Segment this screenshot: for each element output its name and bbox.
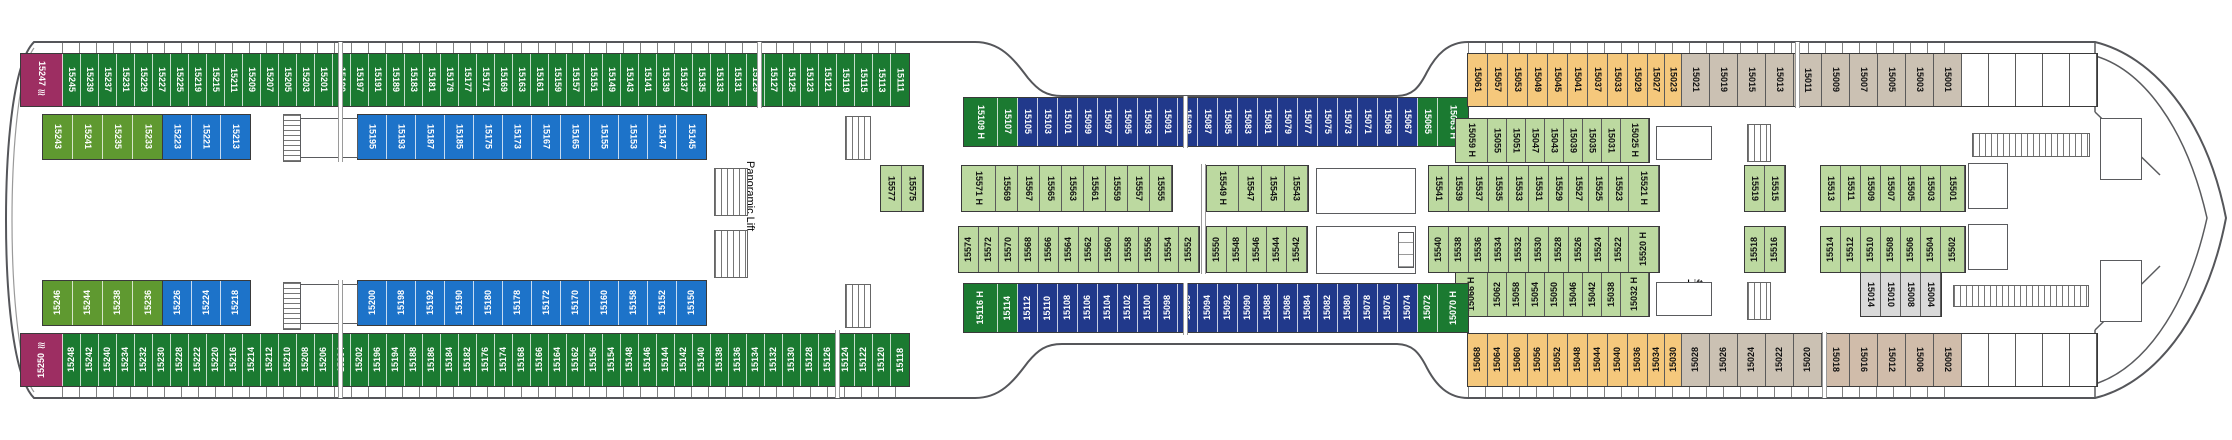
cabin-15027[interactable]: 15027 xyxy=(1648,54,1665,106)
cabin-15152[interactable]: 15152 xyxy=(648,281,677,325)
cabin-15085[interactable]: 15085 xyxy=(1218,98,1238,146)
cabin-15088[interactable]: 15088 xyxy=(1258,284,1278,332)
cabin-15241[interactable]: 15241 xyxy=(73,115,103,159)
cabin-15200[interactable]: 15200 xyxy=(358,281,387,325)
cabin-15129[interactable]: 15129 xyxy=(747,54,765,106)
cabin-15557[interactable]: 15557 xyxy=(1128,166,1150,211)
cabin-15210[interactable]: 15210 xyxy=(279,334,297,386)
cabin-15515[interactable]: 15515 xyxy=(1765,166,1785,211)
cabin-15125[interactable]: 15125 xyxy=(783,54,801,106)
cabin-15229[interactable]: 15229 xyxy=(135,54,153,106)
cabin-15520-H[interactable]: 15520 H xyxy=(1629,227,1659,272)
cabin-15110[interactable]: 15110 xyxy=(1038,284,1058,332)
cabin-15542[interactable]: 15542 xyxy=(1287,227,1307,272)
cabin-15015[interactable]: 15015 xyxy=(1738,54,1766,106)
cabin-15044[interactable]: 15044 xyxy=(1588,334,1608,386)
cabin-15206[interactable]: 15206 xyxy=(315,334,333,386)
cabin-15037[interactable]: 15037 xyxy=(1588,54,1608,106)
cabin-15532[interactable]: 15532 xyxy=(1509,227,1529,272)
cabin-15134[interactable]: 15134 xyxy=(747,334,765,386)
cabin-15172[interactable]: 15172 xyxy=(532,281,561,325)
cabin-15203[interactable]: 15203 xyxy=(297,54,315,106)
cabin-15242[interactable]: 15242 xyxy=(81,334,99,386)
cabin-15055[interactable]: 15055 xyxy=(1488,119,1507,162)
cabin-15225[interactable]: 15225 xyxy=(171,54,189,106)
cabin-15052[interactable]: 15052 xyxy=(1548,334,1568,386)
cabin-15080[interactable]: 15080 xyxy=(1338,284,1358,332)
cabin-15509[interactable]: 15509 xyxy=(1861,166,1881,211)
cabin-15160[interactable]: 15160 xyxy=(590,281,619,325)
cabin-15075[interactable]: 15075 xyxy=(1318,98,1338,146)
cabin-15233[interactable]: 15233 xyxy=(133,115,163,159)
cabin-15567[interactable]: 15567 xyxy=(1018,166,1040,211)
cabin-15194[interactable]: 15194 xyxy=(387,334,405,386)
cabin-15122[interactable]: 15122 xyxy=(855,334,873,386)
cabin-15136[interactable]: 15136 xyxy=(729,334,747,386)
cabin-15234[interactable]: 15234 xyxy=(117,334,135,386)
cabin-15148[interactable]: 15148 xyxy=(621,334,639,386)
cabin-15526[interactable]: 15526 xyxy=(1569,227,1589,272)
cabin-15159[interactable]: 15159 xyxy=(549,54,567,106)
cabin-15223[interactable]: 15223 xyxy=(163,115,192,159)
cabin-15565[interactable]: 15565 xyxy=(1040,166,1062,211)
cabin-15237[interactable]: 15237 xyxy=(99,54,117,106)
cabin-15238[interactable]: 15238 xyxy=(103,281,133,325)
cabin-15226[interactable]: 15226 xyxy=(163,281,192,325)
cabin-15102[interactable]: 15102 xyxy=(1118,284,1138,332)
cabin-15207[interactable]: 15207 xyxy=(261,54,279,106)
cabin-15140[interactable]: 15140 xyxy=(693,334,711,386)
cabin-15166[interactable]: 15166 xyxy=(531,334,549,386)
cabin-15031[interactable]: 15031 xyxy=(1602,119,1621,162)
cabin-15141[interactable]: 15141 xyxy=(639,54,657,106)
cabin-15060[interactable]: 15060 xyxy=(1508,334,1528,386)
cabin-15228[interactable]: 15228 xyxy=(171,334,189,386)
cabin-15536[interactable]: 15536 xyxy=(1469,227,1489,272)
cabin-15541[interactable]: 15541 xyxy=(1429,166,1449,211)
cabin-15029[interactable]: 15029 xyxy=(1628,54,1648,106)
cabin-15010[interactable]: 15010 xyxy=(1881,273,1901,316)
cabin-15065[interactable]: 15065 xyxy=(1418,98,1438,146)
cabin-15174[interactable]: 15174 xyxy=(495,334,513,386)
cabin-15161[interactable]: 15161 xyxy=(531,54,549,106)
cabin-15550[interactable]: 15550 xyxy=(1207,227,1227,272)
cabin-15078[interactable]: 15078 xyxy=(1358,284,1378,332)
cabin-15097[interactable]: 15097 xyxy=(1098,98,1118,146)
cabin-15087[interactable]: 15087 xyxy=(1198,98,1218,146)
cabin-15082[interactable]: 15082 xyxy=(1318,284,1338,332)
cabin-15211[interactable]: 15211 xyxy=(225,54,243,106)
cabin-15171[interactable]: 15171 xyxy=(477,54,495,106)
cabin-15209[interactable]: 15209 xyxy=(243,54,261,106)
cabin-15537[interactable]: 15537 xyxy=(1469,166,1489,211)
cabin-15154[interactable]: 15154 xyxy=(603,334,621,386)
cabin-15525[interactable]: 15525 xyxy=(1589,166,1609,211)
cabin-15546[interactable]: 15546 xyxy=(1247,227,1267,272)
cabin-15045[interactable]: 15045 xyxy=(1548,54,1568,106)
cabin-15224[interactable]: 15224 xyxy=(192,281,221,325)
cabin-15560[interactable]: 15560 xyxy=(1099,227,1119,272)
cabin-15215[interactable]: 15215 xyxy=(207,54,225,106)
cabin-15163[interactable]: 15163 xyxy=(513,54,531,106)
cabin-15073[interactable]: 15073 xyxy=(1338,98,1358,146)
cabin-15012[interactable]: 15012 xyxy=(1878,334,1906,386)
cabin-15028[interactable]: 15028 xyxy=(1682,334,1710,386)
cabin-15190[interactable]: 15190 xyxy=(445,281,474,325)
cabin-15006[interactable]: 15006 xyxy=(1906,334,1934,386)
cabin-15009[interactable]: 15009 xyxy=(1822,54,1850,106)
cabin-15563[interactable]: 15563 xyxy=(1062,166,1084,211)
cabin-15093[interactable]: 15093 xyxy=(1138,98,1158,146)
cabin-15020[interactable]: 15020 xyxy=(1794,334,1822,386)
cabin-15039[interactable]: 15039 xyxy=(1564,119,1583,162)
cabin-15182[interactable]: 15182 xyxy=(459,334,477,386)
cabin-15186[interactable]: 15186 xyxy=(423,334,441,386)
cabin-15248[interactable]: 15248 xyxy=(63,334,81,386)
cabin-15176[interactable]: 15176 xyxy=(477,334,495,386)
cabin-15250[interactable]: 15250≋ xyxy=(21,334,63,386)
cabin-15246[interactable]: 15246 xyxy=(43,281,73,325)
cabin-15201[interactable]: 15201 xyxy=(315,54,333,106)
cabin-15547[interactable]: 15547 xyxy=(1239,166,1262,211)
cabin-15566[interactable]: 15566 xyxy=(1039,227,1059,272)
cabin-15181[interactable]: 15181 xyxy=(423,54,441,106)
cabin-15572[interactable]: 15572 xyxy=(979,227,999,272)
cabin-15189[interactable]: 15189 xyxy=(387,54,405,106)
cabin-15555[interactable]: 15555 xyxy=(1150,166,1172,211)
cabin-15040[interactable]: 15040 xyxy=(1608,334,1628,386)
cabin-15051[interactable]: 15051 xyxy=(1507,119,1526,162)
cabin-15230[interactable]: 15230 xyxy=(153,334,171,386)
cabin-15528[interactable]: 15528 xyxy=(1549,227,1569,272)
cabin-15564[interactable]: 15564 xyxy=(1059,227,1079,272)
cabin-15516[interactable]: 15516 xyxy=(1765,227,1785,272)
cabin-15061[interactable]: 15061 xyxy=(1468,54,1488,106)
cabin-15178[interactable]: 15178 xyxy=(503,281,532,325)
cabin-15068[interactable]: 15068 xyxy=(1468,334,1488,386)
cabin-15503[interactable]: 15503 xyxy=(1921,166,1941,211)
cabin-15059-H[interactable]: 15059 H xyxy=(1456,119,1488,162)
cabin-15146[interactable]: 15146 xyxy=(639,334,657,386)
cabin-15227[interactable]: 15227 xyxy=(153,54,171,106)
cabin-15151[interactable]: 15151 xyxy=(585,54,603,106)
cabin-15195[interactable]: 15195 xyxy=(358,115,387,159)
cabin-15106[interactable]: 15106 xyxy=(1078,284,1098,332)
cabin-15076[interactable]: 15076 xyxy=(1378,284,1398,332)
cabin-15197[interactable]: 15197 xyxy=(351,54,369,106)
cabin-15513[interactable]: 15513 xyxy=(1821,166,1841,211)
cabin-15107[interactable]: 15107 xyxy=(998,98,1018,146)
cabin-15016[interactable]: 15016 xyxy=(1850,334,1878,386)
cabin-15025-H[interactable]: 15025 H xyxy=(1621,119,1649,162)
cabin-15521-H[interactable]: 15521 H xyxy=(1629,166,1659,211)
cabin-15548[interactable]: 15548 xyxy=(1227,227,1247,272)
cabin-15243[interactable]: 15243 xyxy=(43,115,73,159)
cabin-15533[interactable]: 15533 xyxy=(1509,166,1529,211)
cabin-15095[interactable]: 15095 xyxy=(1118,98,1138,146)
cabin-15213[interactable]: 15213 xyxy=(221,115,250,159)
cabin-15021[interactable]: 15021 xyxy=(1682,54,1710,106)
cabin-15177[interactable]: 15177 xyxy=(459,54,477,106)
cabin-15156[interactable]: 15156 xyxy=(585,334,603,386)
cabin-15036[interactable]: 15036 xyxy=(1628,334,1648,386)
cabin-15046[interactable]: 15046 xyxy=(1564,273,1583,316)
cabin-15540[interactable]: 15540 xyxy=(1429,227,1449,272)
cabin-15067[interactable]: 15067 xyxy=(1398,98,1418,146)
cabin-15527[interactable]: 15527 xyxy=(1569,166,1589,211)
cabin-15105[interactable]: 15105 xyxy=(1018,98,1038,146)
cabin-15034[interactable]: 15034 xyxy=(1648,334,1665,386)
cabin-15081[interactable]: 15081 xyxy=(1258,98,1278,146)
cabin-15569[interactable]: 15569 xyxy=(996,166,1018,211)
cabin-15205[interactable]: 15205 xyxy=(279,54,297,106)
cabin-15072[interactable]: 15072 xyxy=(1418,284,1438,332)
cabin-15157[interactable]: 15157 xyxy=(567,54,585,106)
cabin-15003[interactable]: 15003 xyxy=(1906,54,1934,106)
cabin-15002[interactable]: 15002 xyxy=(1934,334,1962,386)
cabin-15196[interactable]: 15196 xyxy=(369,334,387,386)
cabin-15508[interactable]: 15508 xyxy=(1881,227,1901,272)
cabin-15556[interactable]: 15556 xyxy=(1139,227,1159,272)
cabin-15058[interactable]: 15058 xyxy=(1507,273,1526,316)
cabin-15143[interactable]: 15143 xyxy=(621,54,639,106)
cabin-15092[interactable]: 15092 xyxy=(1218,284,1238,332)
cabin-15191[interactable]: 15191 xyxy=(369,54,387,106)
cabin-15554[interactable]: 15554 xyxy=(1159,227,1179,272)
cabin-15030[interactable]: 15030 xyxy=(1665,334,1682,386)
cabin-15539[interactable]: 15539 xyxy=(1449,166,1469,211)
cabin-15147[interactable]: 15147 xyxy=(648,115,677,159)
cabin-15118[interactable]: 15118 xyxy=(891,334,909,386)
cabin-15245[interactable]: 15245 xyxy=(63,54,81,106)
cabin-15111[interactable]: 15111 xyxy=(891,54,909,106)
cabin-15150[interactable]: 15150 xyxy=(677,281,706,325)
cabin-15022[interactable]: 15022 xyxy=(1766,334,1794,386)
cabin-15504[interactable]: 15504 xyxy=(1921,227,1941,272)
cabin-15137[interactable]: 15137 xyxy=(675,54,693,106)
cabin-15198[interactable]: 15198 xyxy=(387,281,416,325)
cabin-15180[interactable]: 15180 xyxy=(474,281,503,325)
cabin-15079[interactable]: 15079 xyxy=(1278,98,1298,146)
cabin-15108[interactable]: 15108 xyxy=(1058,284,1078,332)
cabin-15024[interactable]: 15024 xyxy=(1738,334,1766,386)
cabin-15103[interactable]: 15103 xyxy=(1038,98,1058,146)
cabin-15562[interactable]: 15562 xyxy=(1079,227,1099,272)
cabin-15104[interactable]: 15104 xyxy=(1098,284,1118,332)
cabin-15222[interactable]: 15222 xyxy=(189,334,207,386)
cabin-15135[interactable]: 15135 xyxy=(693,54,711,106)
cabin-15033[interactable]: 15033 xyxy=(1608,54,1628,106)
cabin-15502[interactable]: 15502 xyxy=(1941,227,1965,272)
cabin-15185[interactable]: 15185 xyxy=(445,115,474,159)
cabin-15505[interactable]: 15505 xyxy=(1901,166,1921,211)
cabin-15529[interactable]: 15529 xyxy=(1549,166,1569,211)
cabin-15041[interactable]: 15041 xyxy=(1568,54,1588,106)
cabin-15501[interactable]: 15501 xyxy=(1941,166,1965,211)
cabin-15069[interactable]: 15069 xyxy=(1378,98,1398,146)
cabin-15220[interactable]: 15220 xyxy=(207,334,225,386)
cabin-15023[interactable]: 15023 xyxy=(1665,54,1682,106)
cabin-15193[interactable]: 15193 xyxy=(387,115,416,159)
cabin-15535[interactable]: 15535 xyxy=(1489,166,1509,211)
cabin-15531[interactable]: 15531 xyxy=(1529,166,1549,211)
cabin-15153[interactable]: 15153 xyxy=(619,115,648,159)
cabin-15575[interactable]: 15575 xyxy=(902,166,923,211)
cabin-15552[interactable]: 15552 xyxy=(1179,227,1199,272)
cabin-15514[interactable]: 15514 xyxy=(1821,227,1841,272)
cabin-15038[interactable]: 15038 xyxy=(1602,273,1621,316)
cabin-15162[interactable]: 15162 xyxy=(567,334,585,386)
cabin-15510[interactable]: 15510 xyxy=(1861,227,1881,272)
cabin-15512[interactable]: 15512 xyxy=(1841,227,1861,272)
cabin-15130[interactable]: 15130 xyxy=(783,334,801,386)
cabin-15109-H[interactable]: 15109 H xyxy=(964,98,998,146)
cabin-15240[interactable]: 15240 xyxy=(99,334,117,386)
cabin-15183[interactable]: 15183 xyxy=(405,54,423,106)
cabin-15574[interactable]: 15574 xyxy=(959,227,979,272)
cabin-15235[interactable]: 15235 xyxy=(103,115,133,159)
cabin-15131[interactable]: 15131 xyxy=(729,54,747,106)
cabin-15056[interactable]: 15056 xyxy=(1528,334,1548,386)
cabin-15004[interactable]: 15004 xyxy=(1921,273,1941,316)
cabin-15188[interactable]: 15188 xyxy=(405,334,423,386)
cabin-15570[interactable]: 15570 xyxy=(999,227,1019,272)
cabin-15232[interactable]: 15232 xyxy=(135,334,153,386)
cabin-15062[interactable]: 15062 xyxy=(1488,273,1507,316)
cabin-15090[interactable]: 15090 xyxy=(1238,284,1258,332)
cabin-15561[interactable]: 15561 xyxy=(1084,166,1106,211)
cabin-15014[interactable]: 15014 xyxy=(1861,273,1881,316)
cabin-15099[interactable]: 15099 xyxy=(1078,98,1098,146)
cabin-15192[interactable]: 15192 xyxy=(416,281,445,325)
cabin-15116-H[interactable]: 15116 H xyxy=(964,284,998,332)
cabin-15538[interactable]: 15538 xyxy=(1449,227,1469,272)
cabin-15086[interactable]: 15086 xyxy=(1278,284,1298,332)
cabin-15064[interactable]: 15064 xyxy=(1488,334,1508,386)
cabin-15074[interactable]: 15074 xyxy=(1398,284,1418,332)
cabin-15167[interactable]: 15167 xyxy=(532,115,561,159)
cabin-15070-H[interactable]: 15070 H xyxy=(1438,284,1468,332)
cabin-15170[interactable]: 15170 xyxy=(561,281,590,325)
cabin-15155[interactable]: 15155 xyxy=(590,115,619,159)
cabin-15123[interactable]: 15123 xyxy=(801,54,819,106)
cabin-15096[interactable]: 15096 xyxy=(1178,284,1198,332)
cabin-15114[interactable]: 15114 xyxy=(998,284,1018,332)
cabin-15032-H[interactable]: 15032 H xyxy=(1621,273,1649,316)
cabin-15094[interactable]: 15094 xyxy=(1198,284,1218,332)
cabin-15007[interactable]: 15007 xyxy=(1850,54,1878,106)
cabin-15077[interactable]: 15077 xyxy=(1298,98,1318,146)
cabin-15577[interactable]: 15577 xyxy=(881,166,902,211)
cabin-15506[interactable]: 15506 xyxy=(1901,227,1921,272)
cabin-15158[interactable]: 15158 xyxy=(619,281,648,325)
cabin-15054[interactable]: 15054 xyxy=(1526,273,1545,316)
cabin-15164[interactable]: 15164 xyxy=(549,334,567,386)
cabin-15165[interactable]: 15165 xyxy=(561,115,590,159)
cabin-15184[interactable]: 15184 xyxy=(441,334,459,386)
cabin-15019[interactable]: 15019 xyxy=(1710,54,1738,106)
cabin-15549-H[interactable]: 15549 H xyxy=(1207,166,1239,211)
cabin-15132[interactable]: 15132 xyxy=(765,334,783,386)
cabin-15112[interactable]: 15112 xyxy=(1018,284,1038,332)
cabin-15168[interactable]: 15168 xyxy=(513,334,531,386)
cabin-15139[interactable]: 15139 xyxy=(657,54,675,106)
cabin-15120[interactable]: 15120 xyxy=(873,334,891,386)
cabin-15083[interactable]: 15083 xyxy=(1238,98,1258,146)
cabin-15071[interactable]: 15071 xyxy=(1358,98,1378,146)
cabin-15084[interactable]: 15084 xyxy=(1298,284,1318,332)
cabin-15057[interactable]: 15057 xyxy=(1488,54,1508,106)
cabin-15128[interactable]: 15128 xyxy=(801,334,819,386)
cabin-15091[interactable]: 15091 xyxy=(1158,98,1178,146)
cabin-15507[interactable]: 15507 xyxy=(1881,166,1901,211)
cabin-15101[interactable]: 15101 xyxy=(1058,98,1078,146)
cabin-15247[interactable]: 15247≋ xyxy=(21,54,63,106)
cabin-15144[interactable]: 15144 xyxy=(657,334,675,386)
cabin-15524[interactable]: 15524 xyxy=(1589,227,1609,272)
cabin-15239[interactable]: 15239 xyxy=(81,54,99,106)
cabin-15089[interactable]: 15089 xyxy=(1178,98,1198,146)
cabin-15187[interactable]: 15187 xyxy=(416,115,445,159)
cabin-15208[interactable]: 15208 xyxy=(297,334,315,386)
cabin-15049[interactable]: 15049 xyxy=(1528,54,1548,106)
cabin-15568[interactable]: 15568 xyxy=(1019,227,1039,272)
cabin-15212[interactable]: 15212 xyxy=(261,334,279,386)
cabin-15043[interactable]: 15043 xyxy=(1545,119,1564,162)
cabin-15133[interactable]: 15133 xyxy=(711,54,729,106)
cabin-15522[interactable]: 15522 xyxy=(1609,227,1629,272)
cabin-15026[interactable]: 15026 xyxy=(1710,334,1738,386)
cabin-15202[interactable]: 15202 xyxy=(351,334,369,386)
cabin-15523[interactable]: 15523 xyxy=(1609,166,1629,211)
cabin-15050[interactable]: 15050 xyxy=(1545,273,1564,316)
cabin-15530[interactable]: 15530 xyxy=(1529,227,1549,272)
cabin-15214[interactable]: 15214 xyxy=(243,334,261,386)
cabin-15138[interactable]: 15138 xyxy=(711,334,729,386)
cabin-15231[interactable]: 15231 xyxy=(117,54,135,106)
cabin-15119[interactable]: 15119 xyxy=(837,54,855,106)
cabin-15544[interactable]: 15544 xyxy=(1267,227,1287,272)
cabin-15001[interactable]: 15001 xyxy=(1934,54,1962,106)
cabin-15543[interactable]: 15543 xyxy=(1285,166,1308,211)
cabin-15218[interactable]: 15218 xyxy=(221,281,250,325)
cabin-15534[interactable]: 15534 xyxy=(1489,227,1509,272)
cabin-15216[interactable]: 15216 xyxy=(225,334,243,386)
cabin-15173[interactable]: 15173 xyxy=(503,115,532,159)
cabin-15115[interactable]: 15115 xyxy=(855,54,873,106)
cabin-15005[interactable]: 15005 xyxy=(1878,54,1906,106)
cabin-15571-H[interactable]: 15571 H xyxy=(962,166,996,211)
cabin-15098[interactable]: 15098 xyxy=(1158,284,1178,332)
cabin-15518[interactable]: 15518 xyxy=(1745,227,1765,272)
cabin-15236[interactable]: 15236 xyxy=(133,281,163,325)
cabin-15100[interactable]: 15100 xyxy=(1138,284,1158,332)
cabin-15127[interactable]: 15127 xyxy=(765,54,783,106)
cabin-15008[interactable]: 15008 xyxy=(1901,273,1921,316)
cabin-15221[interactable]: 15221 xyxy=(192,115,221,159)
cabin-15142[interactable]: 15142 xyxy=(675,334,693,386)
cabin-15113[interactable]: 15113 xyxy=(873,54,891,106)
cabin-15145[interactable]: 15145 xyxy=(677,115,706,159)
cabin-15121[interactable]: 15121 xyxy=(819,54,837,106)
cabin-15244[interactable]: 15244 xyxy=(73,281,103,325)
cabin-15169[interactable]: 15169 xyxy=(495,54,513,106)
cabin-15149[interactable]: 15149 xyxy=(603,54,621,106)
cabin-15179[interactable]: 15179 xyxy=(441,54,459,106)
cabin-15047[interactable]: 15047 xyxy=(1526,119,1545,162)
cabin-15559[interactable]: 15559 xyxy=(1106,166,1128,211)
cabin-15013[interactable]: 15013 xyxy=(1766,54,1794,106)
